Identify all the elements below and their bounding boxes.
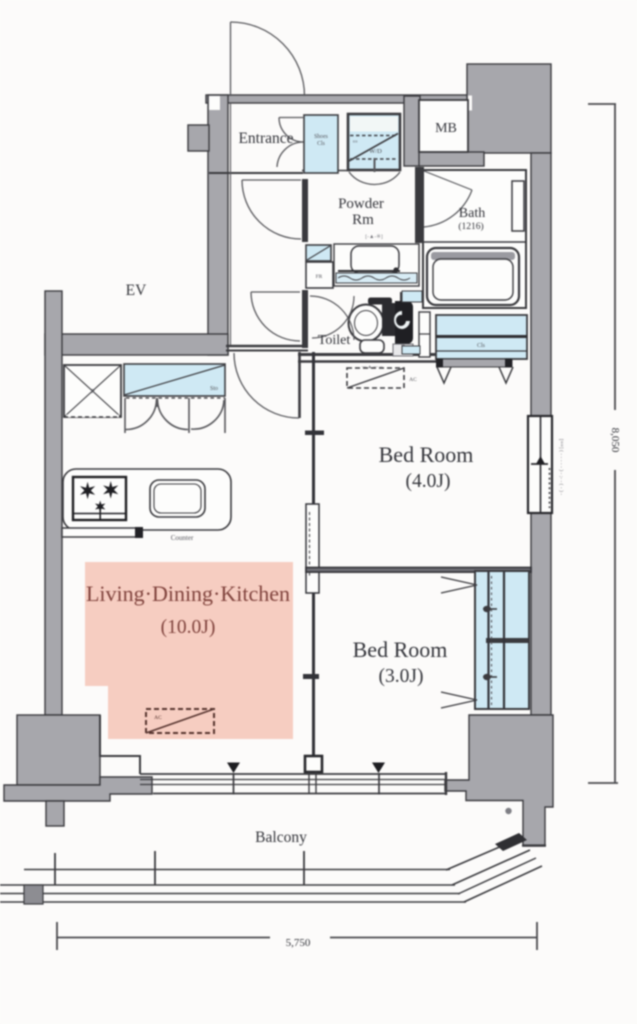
svg-text:(1216): (1216) xyxy=(458,221,483,232)
svg-text:Toilet: Toilet xyxy=(318,333,351,348)
svg-text:FR: FR xyxy=(316,274,323,280)
svg-text:≡≡: ≡≡ xyxy=(352,139,358,144)
svg-text:(10.0J): (10.0J) xyxy=(161,617,216,638)
svg-text:Bed Room: Bed Room xyxy=(353,637,448,662)
svg-text:▪▪: ▪▪ xyxy=(401,344,405,349)
svg-text:Counter: Counter xyxy=(171,534,194,542)
svg-text:(4.0J): (4.0J) xyxy=(406,471,451,492)
svg-text:Balcony: Balcony xyxy=(255,829,307,846)
svg-text:--- ▲ --- --: --- ▲ --- -- xyxy=(361,365,383,370)
svg-text:Sto: Sto xyxy=(210,386,218,392)
svg-text:Entrance: Entrance xyxy=(238,130,293,147)
svg-text:AC: AC xyxy=(409,377,417,383)
svg-text:8,050: 8,050 xyxy=(609,428,621,453)
svg-text:Cls: Cls xyxy=(317,141,325,147)
svg-text:EV: EV xyxy=(126,282,147,299)
svg-text:Powder: Powder xyxy=(338,196,384,212)
svg-text:Cls: Cls xyxy=(477,343,486,349)
svg-text:Rm: Rm xyxy=(352,212,374,228)
svg-text:MB: MB xyxy=(435,121,457,136)
svg-text:R: R xyxy=(91,388,96,395)
svg-text:[≡≡] ( - - - - - ) - ;- - ( -: [≡≡] ( - - - - - ) - ;- - ( - ) - xyxy=(558,439,565,495)
svg-text:Bath: Bath xyxy=(459,206,485,221)
svg-text:Bed Room: Bed Room xyxy=(379,442,474,467)
svg-text:[-▲-※]: [-▲-※] xyxy=(365,233,383,240)
svg-text:Living·Dining·Kitchen: Living·Dining·Kitchen xyxy=(86,581,290,606)
svg-text:(3.0J): (3.0J) xyxy=(379,666,424,687)
svg-text:AC: AC xyxy=(154,715,162,721)
svg-text:5,750: 5,750 xyxy=(286,937,311,949)
svg-text:W/D: W/D xyxy=(369,148,382,155)
svg-text:Shoes: Shoes xyxy=(314,134,329,140)
